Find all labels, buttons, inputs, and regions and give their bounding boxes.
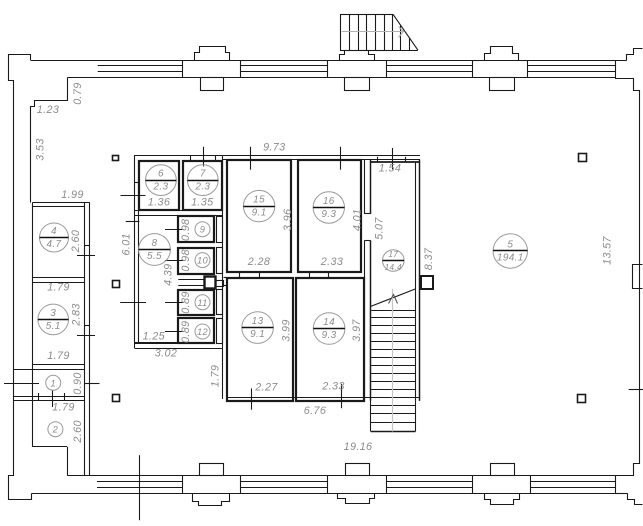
svg-text:14.4: 14.4: [385, 263, 402, 272]
svg-text:2.27: 2.27: [254, 382, 278, 394]
svg-text:3.96: 3.96: [282, 209, 294, 231]
svg-text:8: 8: [152, 238, 158, 249]
svg-text:4: 4: [51, 226, 57, 237]
svg-text:1.79: 1.79: [52, 402, 74, 414]
svg-text:0.79: 0.79: [72, 82, 84, 104]
svg-text:0.90: 0.90: [72, 372, 84, 394]
svg-text:9: 9: [200, 225, 206, 235]
svg-text:6: 6: [158, 169, 164, 180]
svg-text:0.89: 0.89: [180, 321, 192, 343]
svg-text:1.79: 1.79: [210, 365, 222, 387]
svg-text:15: 15: [253, 195, 265, 206]
svg-text:2.3: 2.3: [194, 182, 210, 193]
svg-text:9.1: 9.1: [252, 208, 267, 219]
svg-text:0.89: 0.89: [180, 291, 192, 313]
svg-text:0.98: 0.98: [180, 249, 192, 271]
svg-text:2: 2: [52, 425, 59, 435]
svg-text:4.39: 4.39: [163, 263, 175, 285]
svg-text:13: 13: [252, 316, 264, 327]
svg-text:1.36: 1.36: [148, 197, 170, 209]
svg-text:10: 10: [197, 256, 209, 266]
svg-text:1.79: 1.79: [47, 282, 69, 294]
svg-text:8.37: 8.37: [423, 247, 435, 270]
svg-text:2.60: 2.60: [72, 420, 84, 443]
svg-text:5: 5: [507, 240, 513, 251]
svg-text:1.99: 1.99: [61, 189, 83, 201]
svg-text:19.16: 19.16: [344, 441, 373, 453]
svg-text:7: 7: [200, 169, 206, 180]
svg-text:3.53: 3.53: [35, 138, 47, 160]
svg-text:9.73: 9.73: [263, 142, 285, 154]
svg-text:2.60: 2.60: [70, 230, 82, 253]
svg-text:14: 14: [323, 317, 335, 328]
svg-text:17: 17: [388, 250, 398, 259]
svg-text:2.33: 2.33: [320, 256, 343, 268]
svg-text:13.57: 13.57: [602, 235, 614, 264]
svg-text:6.01: 6.01: [120, 233, 132, 255]
svg-text:4.01: 4.01: [352, 209, 364, 231]
svg-text:1.25: 1.25: [143, 330, 166, 342]
svg-text:5.1: 5.1: [46, 321, 61, 332]
svg-text:2.28: 2.28: [247, 256, 270, 268]
svg-text:0.98: 0.98: [180, 219, 192, 241]
svg-text:3.99: 3.99: [281, 319, 293, 341]
svg-text:9.1: 9.1: [250, 329, 265, 340]
svg-text:5.5: 5.5: [147, 251, 162, 262]
svg-text:194.1: 194.1: [497, 253, 524, 264]
svg-text:1.35: 1.35: [191, 197, 214, 209]
svg-text:3.02: 3.02: [155, 348, 177, 360]
svg-text:3.97: 3.97: [351, 319, 363, 342]
svg-text:16: 16: [323, 196, 335, 207]
svg-text:11: 11: [197, 298, 207, 308]
svg-text:1.54: 1.54: [379, 163, 401, 175]
svg-text:2.3: 2.3: [152, 182, 168, 193]
svg-text:2.83: 2.83: [71, 303, 83, 326]
svg-text:3: 3: [50, 308, 56, 319]
svg-text:5.07: 5.07: [374, 217, 386, 240]
svg-text:9.3: 9.3: [322, 330, 337, 341]
svg-text:1.79: 1.79: [47, 350, 69, 362]
svg-text:4.7: 4.7: [47, 239, 62, 250]
svg-text:2.33: 2.33: [321, 381, 344, 393]
svg-text:1.23: 1.23: [37, 104, 59, 116]
svg-text:12: 12: [197, 327, 209, 337]
svg-text:1: 1: [50, 378, 56, 388]
svg-text:6.76: 6.76: [304, 405, 326, 417]
svg-text:9.3: 9.3: [321, 209, 336, 220]
